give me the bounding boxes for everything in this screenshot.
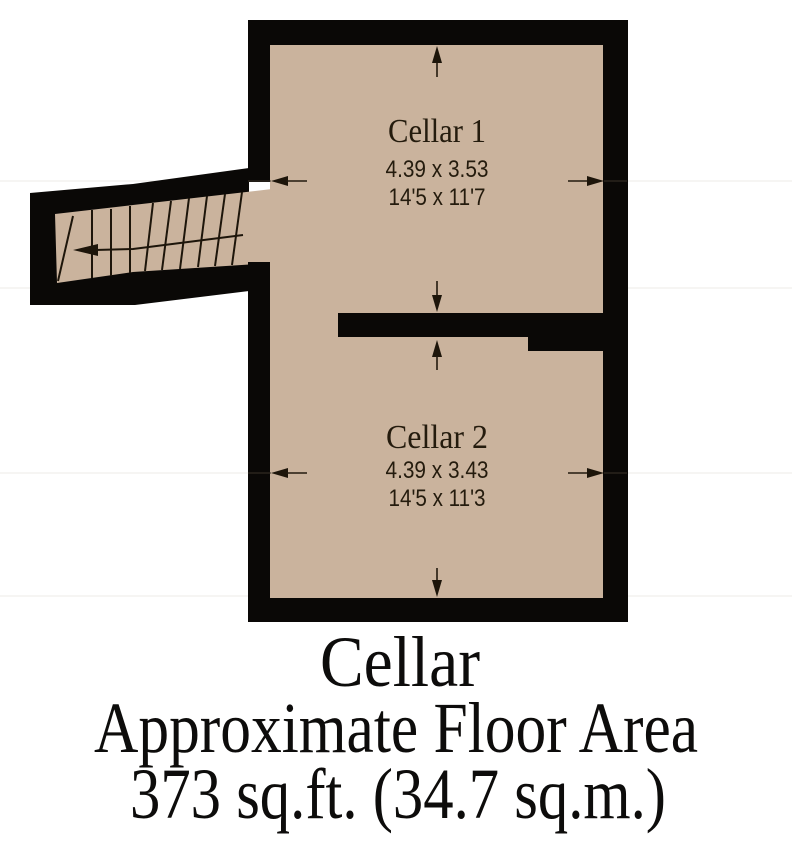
cellar1-labels: Cellar 1 4.39 x 3.53 14'5 x 11'7 [386,113,489,211]
room-imperial-dims: 14'5 x 11'7 [389,184,486,211]
top-wall [248,20,628,45]
footer-caption: Cellar Approximate Floor Area 373 sq.ft.… [94,622,698,834]
room-metric-dims: 4.39 x 3.53 [386,156,489,183]
left-wall-lower [248,262,270,622]
room-imperial-dims: 14'5 x 11'3 [389,485,486,512]
cellar2-labels: Cellar 2 4.39 x 3.43 14'5 x 11'3 [386,419,489,512]
floor-plan-canvas: Cellar 1 4.39 x 3.53 14'5 x 11'7 Cellar … [0,0,792,854]
floor-area-value: 373 sq.ft. (34.7 sq.m.) [130,754,666,834]
floorplan-page: Cellar 1 4.39 x 3.53 14'5 x 11'7 Cellar … [0,0,792,854]
bottom-wall [248,598,628,622]
room-label: Cellar 2 [386,419,488,456]
left-wall-upper [248,20,270,182]
room-metric-dims: 4.39 x 3.43 [386,457,489,484]
room-label: Cellar 1 [388,113,486,150]
